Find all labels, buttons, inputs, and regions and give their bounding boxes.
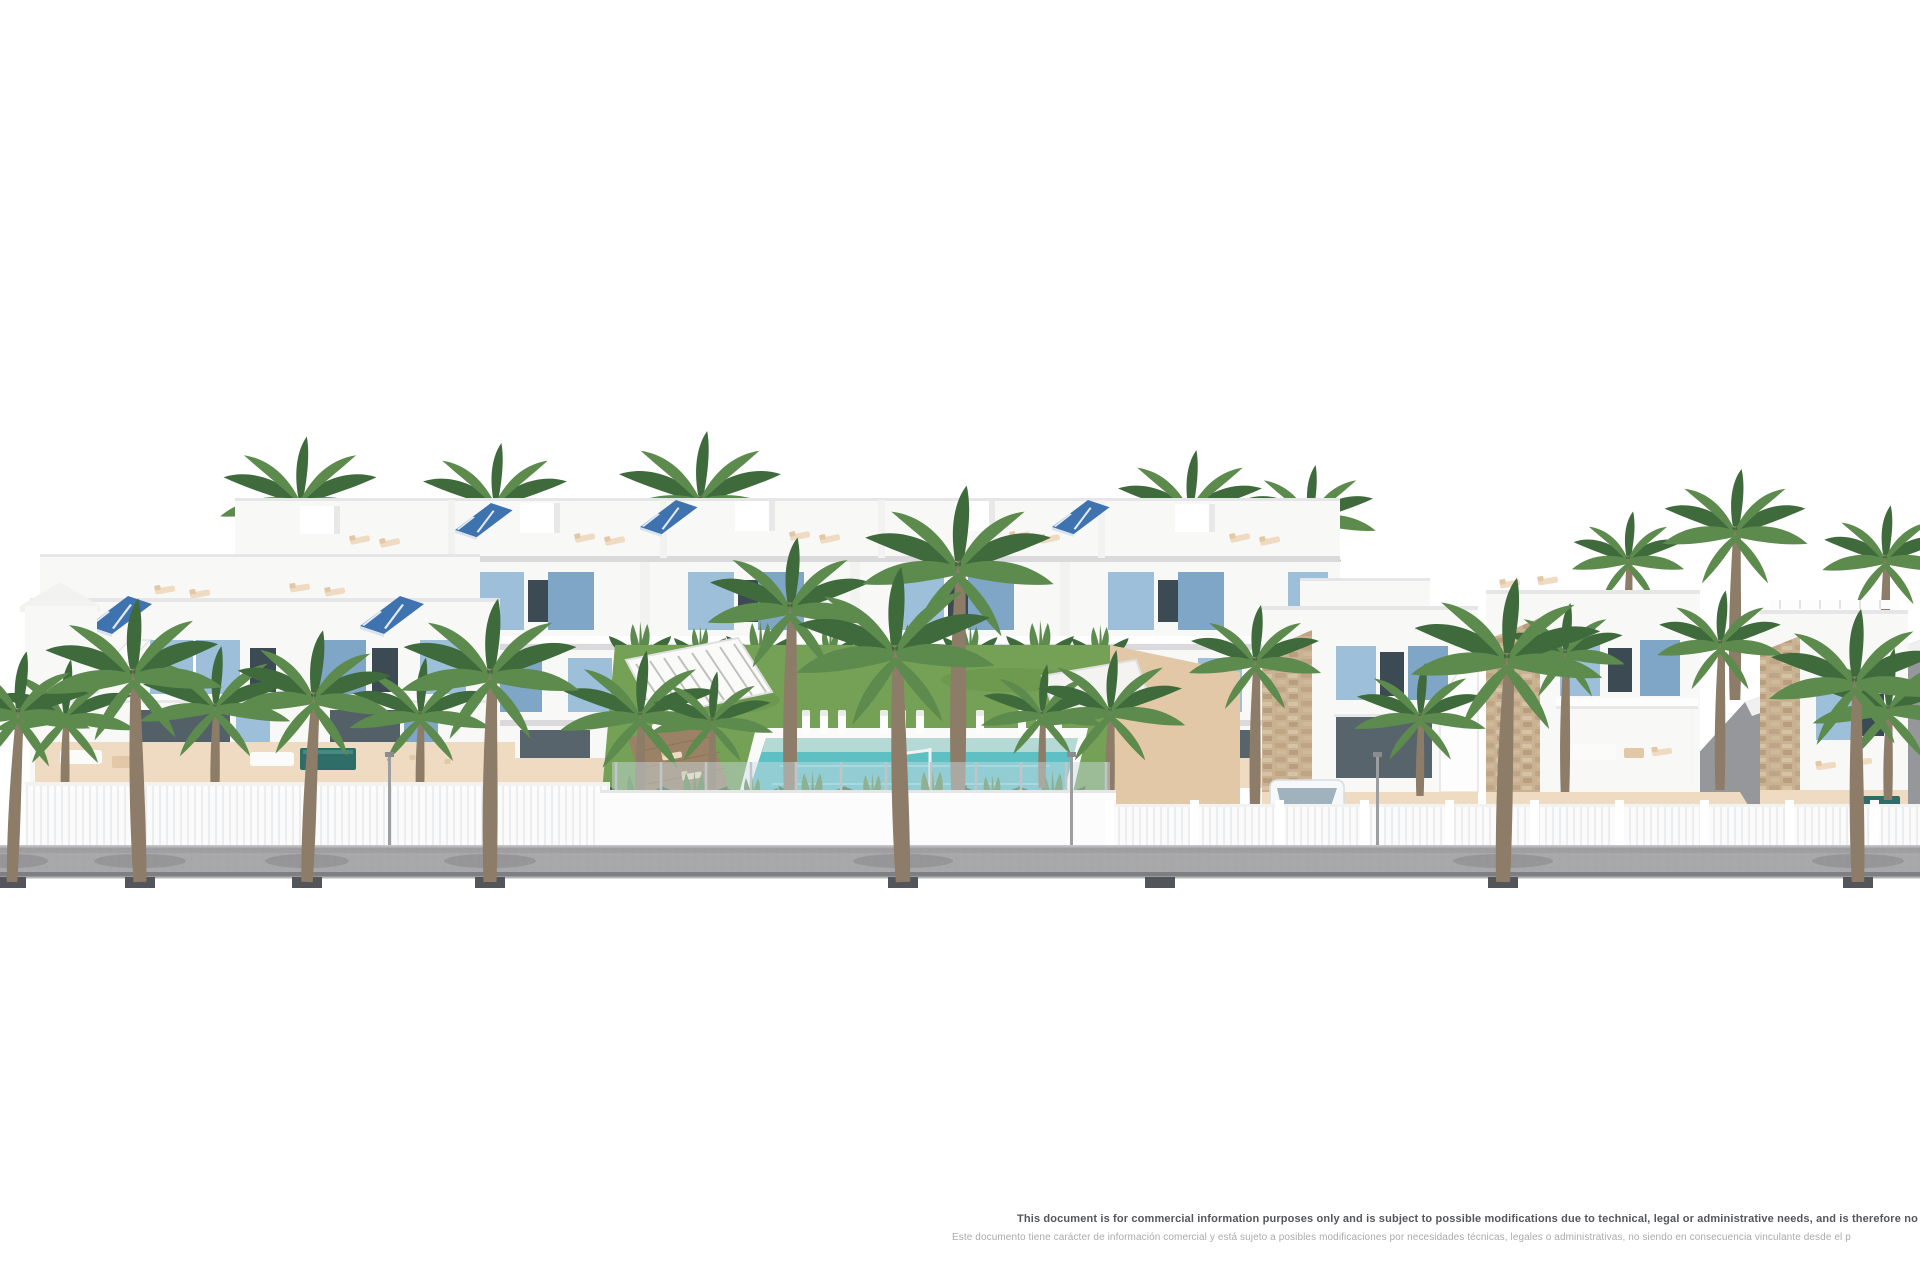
- tree-planters: [0, 877, 1873, 888]
- slat-fence-left: [25, 784, 610, 845]
- slat-fence-right: [1105, 806, 1920, 845]
- garden-balustrade: [600, 762, 1116, 845]
- render-canvas: This document is for commercial informat…: [0, 0, 1920, 1280]
- outdoor-table: [1624, 748, 1644, 758]
- curb: [0, 872, 1920, 877]
- outdoor-sofa: [250, 752, 294, 766]
- development-render: [0, 0, 1920, 1280]
- pergola-beam: [1556, 698, 1698, 706]
- rear-roof-band: [235, 500, 1340, 562]
- outdoor-sofa: [1570, 744, 1616, 760]
